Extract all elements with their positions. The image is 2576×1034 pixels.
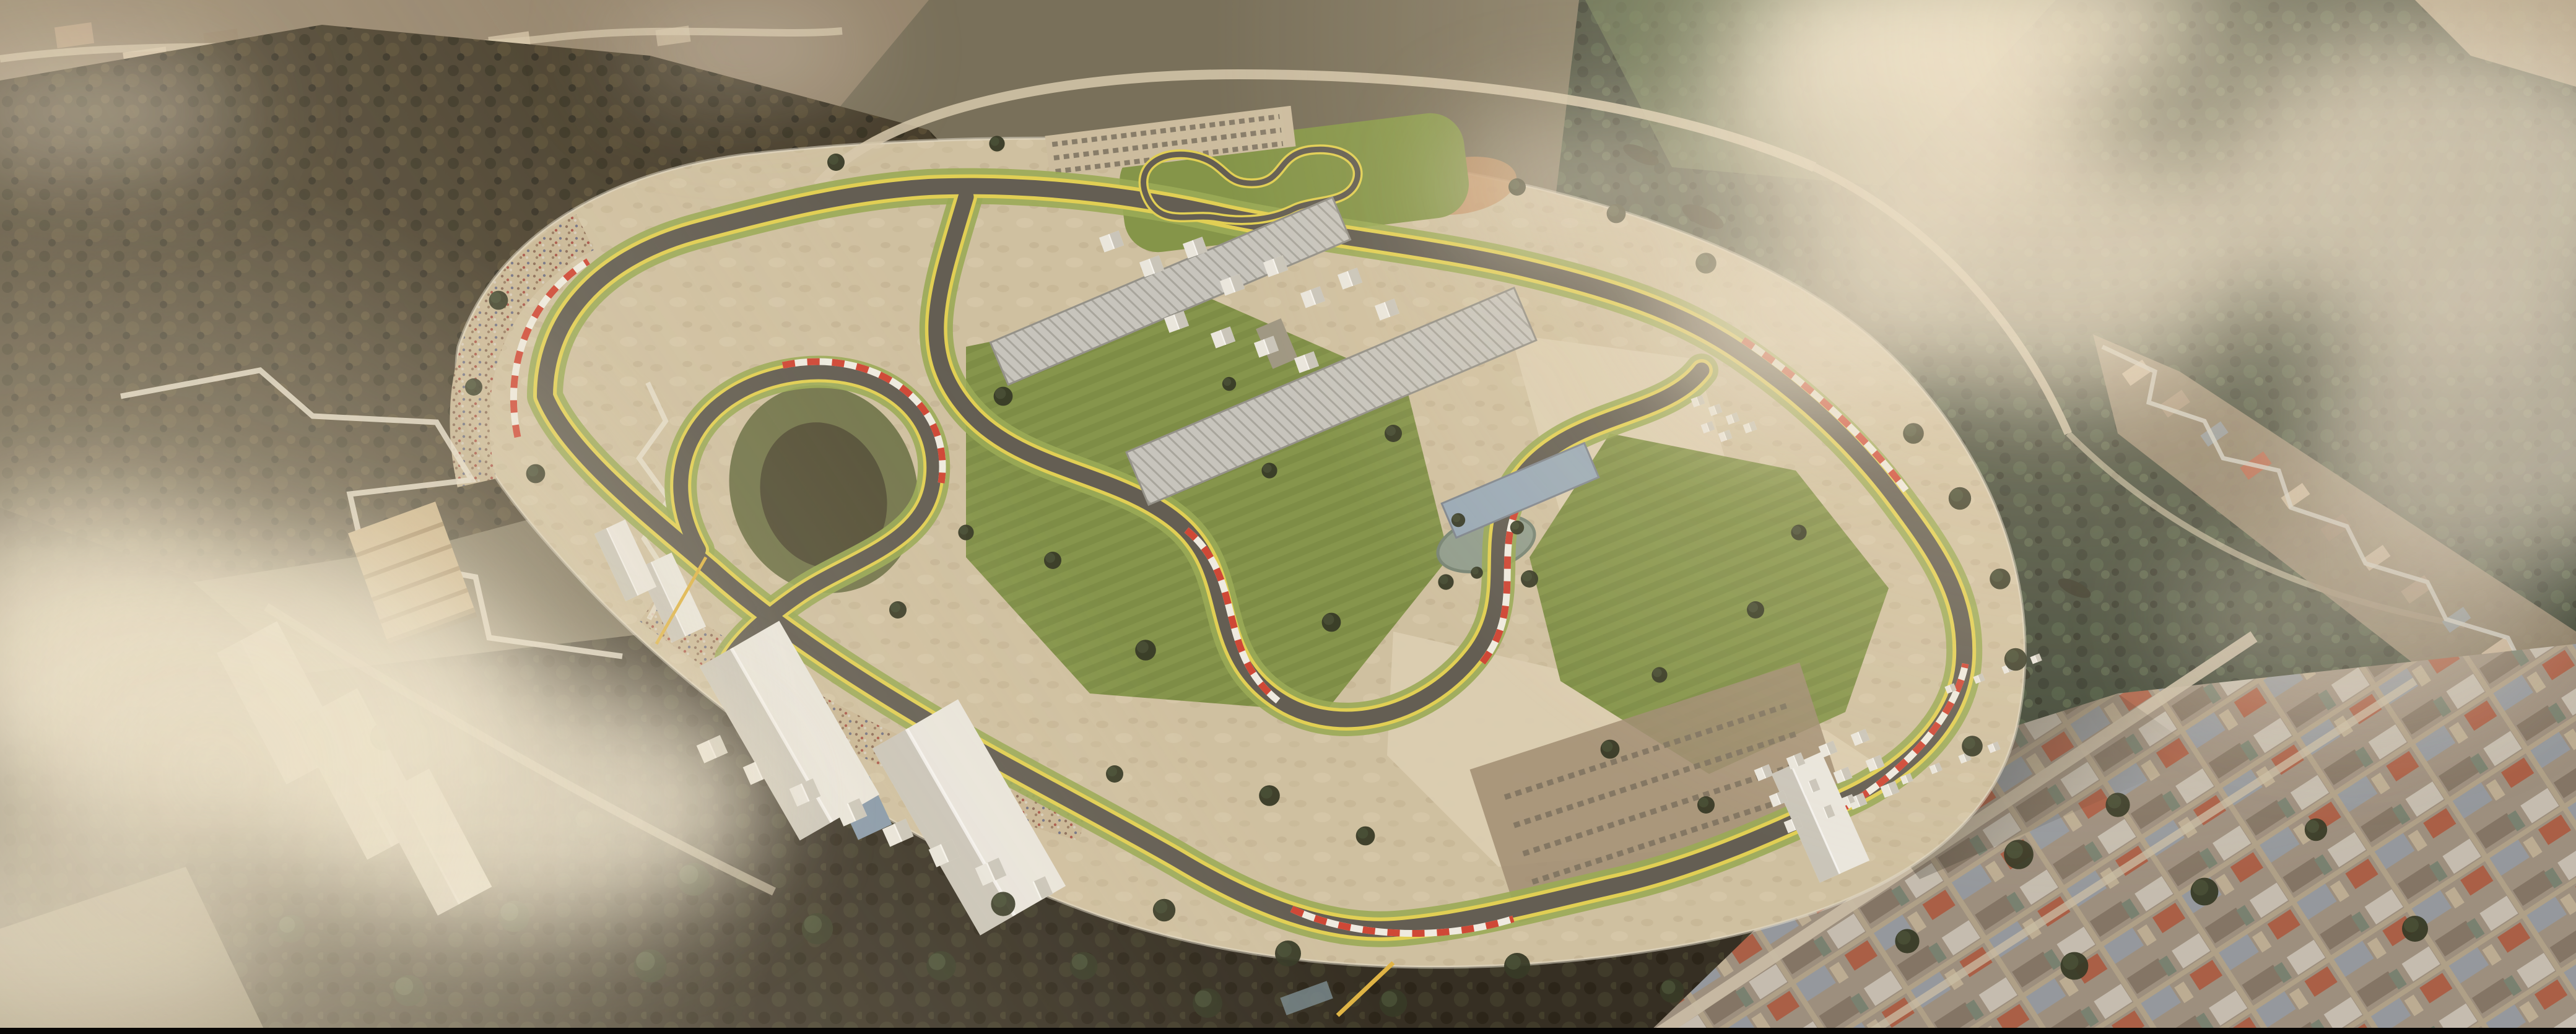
letterbox-bar [0, 1028, 2576, 1034]
aerial-render: Sunset aerial 3D rendering of a motorspo… [0, 0, 2576, 1034]
scene-canvas [0, 0, 2576, 1034]
atmosphere [0, 0, 2576, 1034]
warm-tint [0, 0, 2576, 1034]
